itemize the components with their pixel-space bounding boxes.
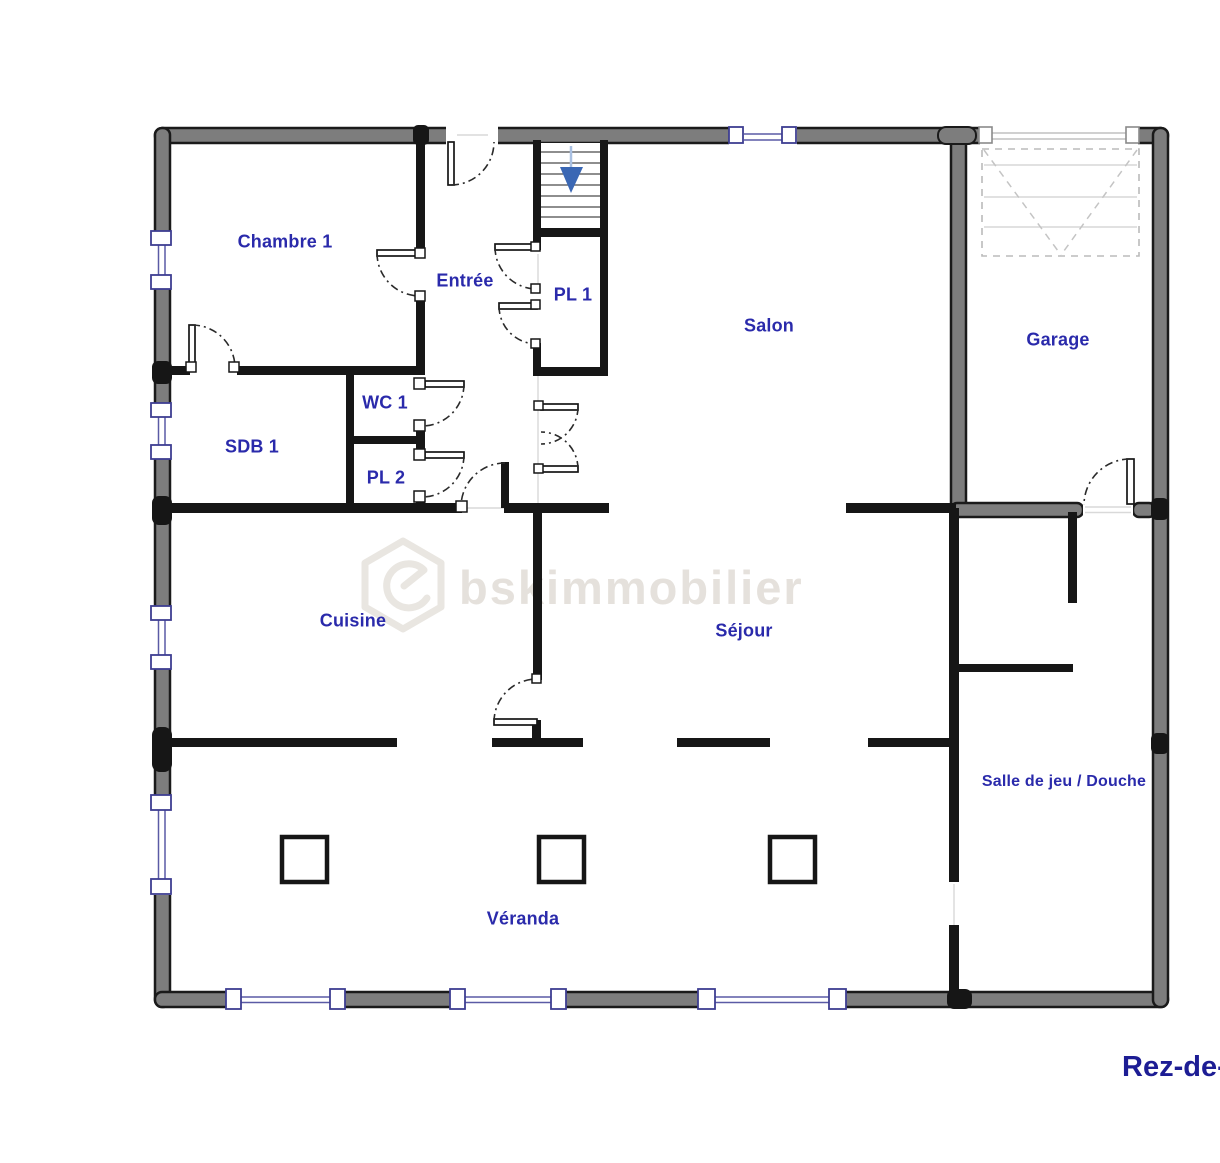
door-post [414,420,425,431]
door-post [415,248,425,258]
window-opening-bottom-2 [450,990,565,1009]
door-couloir [456,462,509,512]
staircase [541,143,600,228]
window-post [829,989,846,1009]
door-post [414,378,425,389]
door-chambre1 [377,248,425,301]
door-swing-arc [1084,459,1130,505]
window-post [151,795,171,810]
doors [186,142,1134,725]
garage-door-panels [984,165,1137,227]
window-post [151,655,171,669]
joint-cap [413,125,429,145]
door-leaf [448,142,454,185]
window-post [698,989,715,1009]
veranda-posts [282,837,815,882]
joint-cap [947,989,972,1009]
room-label-wc-1: WC 1 [362,393,408,414]
window-post [551,989,566,1009]
joint-cap [152,361,172,384]
garage-rear-door-opening [1083,503,1133,517]
door-post [531,339,540,348]
veranda-post [539,837,584,882]
door-swing-arc [377,253,420,296]
double-door-sejour [534,401,578,473]
door-swing-arc [541,432,578,469]
joint-cap [152,496,172,525]
room-label-veranda: Véranda [487,909,559,930]
door-post [229,362,239,372]
wall-segment [416,294,425,375]
room-label-pl-1: PL 1 [554,285,593,306]
window-post [782,127,796,143]
room-label-chambre-1: Chambre 1 [238,232,333,253]
wall-segment [533,367,608,376]
door-post [531,284,540,293]
wall-segment [350,436,424,444]
door-swing-arc [451,142,494,185]
window-post [330,989,345,1009]
garage-door-opening [980,126,1138,145]
wall-segment [950,664,1073,672]
window-post [151,606,171,620]
veranda-post [282,837,327,882]
door-leaf [501,462,509,508]
wall-segment [949,925,959,995]
wall-garage-divider [951,131,966,511]
door-swing-arc [422,384,464,426]
door-pl2 [414,449,464,502]
room-label-entree: Entrée [436,271,493,292]
door-leaf [425,452,464,458]
door-post [531,242,540,251]
window-post [151,445,171,459]
door-swing-arc [422,455,464,497]
door-swing-arc [495,247,537,289]
room-label-cuisine: Cuisine [320,611,386,632]
wall-segment [416,140,425,254]
guide-lines [457,135,1131,925]
room-label-salle-de-jeu: Salle de jeu / Douche [982,773,1146,791]
door-post [979,127,992,143]
window-post [151,403,171,417]
watermark-swirl [387,564,427,608]
wall-segment [166,738,397,747]
door-swing-arc [541,407,578,444]
door-post [534,401,543,410]
window-post [729,127,743,143]
door-post [414,449,425,460]
floor-plan-drawing [0,0,1220,1163]
door-leaf [494,719,537,725]
wall-segment [533,508,542,680]
wall-segment [846,503,956,513]
window-post [450,989,465,1009]
room-label-garage: Garage [1026,330,1089,351]
window-post [226,989,241,1009]
window-post [151,231,171,245]
window-opening-bottom-1 [226,990,345,1009]
wall-top-garage-joint [938,127,976,144]
wall-segment [346,370,354,510]
door-pl1-lower [499,300,540,348]
wall-segment [1068,512,1077,603]
wall-segment [533,140,541,237]
door-post [532,674,541,683]
door-swing-arc [494,679,537,722]
door-leaf [377,250,420,256]
door-post [456,501,467,512]
wall-segment [504,503,609,513]
door-post [186,362,196,372]
door-cuisine [494,674,541,725]
door-leaf [425,381,464,387]
door-entrance [448,142,494,185]
joint-cap [152,727,172,772]
door-post [414,491,425,502]
wall-segment [677,738,770,747]
floor-title: Rez-de-c [1122,1051,1220,1084]
wall-segment [868,738,956,747]
garage-door-v-guides [984,150,1137,255]
door-post [415,291,425,301]
room-label-salon: Salon [744,316,794,337]
veranda-post [770,837,815,882]
wall-right [1153,128,1168,1007]
window-opening-bottom-3 [698,990,846,1009]
wall-segment [949,508,959,882]
door-leaf [1127,459,1134,504]
room-label-sejour: Séjour [715,621,772,642]
door-leaf [541,466,578,472]
wall-garage-bottom-left [951,503,1083,517]
joint-cap [1151,498,1169,520]
door-leaf [541,404,578,410]
garage-door-icon [982,149,1139,256]
wall-segment [237,366,420,375]
door-wc1 [414,378,464,431]
wall-segment [600,140,608,376]
door-post [1126,127,1139,143]
joint-cap [1151,733,1169,754]
door-garage-rear [1084,459,1134,505]
door-post [534,464,543,473]
door-sdb1 [186,325,239,372]
door-pl1-upper [495,242,540,293]
window-post [151,879,171,894]
door-leaf [189,325,195,367]
door-post [531,300,540,309]
room-label-sdb-1: SDB 1 [225,437,279,458]
room-label-pl-2: PL 2 [367,468,406,489]
window-post [151,275,171,289]
floor-plan-page: bskimmobilier [0,0,1220,1163]
stairs-base-wall [533,228,608,237]
opening-guide-lines [457,135,1131,925]
